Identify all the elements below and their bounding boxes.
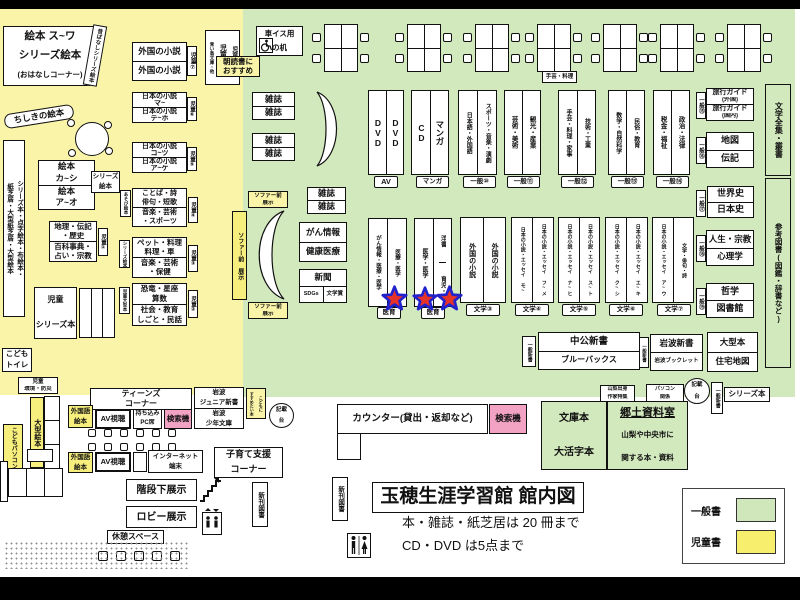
shimbun-sdgs: 新聞SDGs文学賞 bbox=[299, 269, 347, 303]
bunko-daikatsuji: 文庫本大活字本 bbox=[541, 401, 607, 470]
kensakuki-2: 検索機 bbox=[489, 404, 527, 434]
rest-space-floor bbox=[4, 541, 188, 569]
shelf-nihon-4: 日本の小説・エッセイ モ~日本の小説・エッセイ フ~メ bbox=[511, 217, 554, 303]
elevator-icon bbox=[202, 508, 222, 535]
shelf-gogaku-sports-col: 日本語・外国語 bbox=[459, 91, 477, 174]
label-manga: マンガ bbox=[416, 176, 449, 188]
internet-tanmatsu: インターネット端末 bbox=[148, 450, 203, 473]
picturebook-main-row: シリーズ絵本 bbox=[4, 46, 96, 65]
ehon-ka-shi-row: ア~オ bbox=[39, 197, 94, 209]
pet-ryori-row: 料理・車 bbox=[133, 248, 186, 258]
wheelchair-icon bbox=[259, 38, 273, 53]
jinsei-shukyo-row: 人生・宗教 bbox=[707, 231, 753, 248]
iwanami-shinsho-row: 岩波ブックレット bbox=[651, 352, 702, 370]
teens-corner-row: コーナー bbox=[91, 399, 191, 409]
chair bbox=[88, 443, 96, 451]
jido-series-bon-row: 児童 bbox=[35, 288, 76, 313]
shelf-geijutsu-col: 観光・産業 bbox=[522, 91, 540, 174]
chair bbox=[168, 443, 176, 451]
kosodate-shien-row: コーナー bbox=[215, 463, 282, 478]
chair bbox=[696, 33, 705, 42]
shinkan-tosho-2: 新刊図書 bbox=[332, 477, 348, 521]
chair bbox=[105, 147, 113, 155]
rule-line-1: 本・雑誌・紙芝居は 20 冊まで bbox=[402, 514, 602, 532]
chiri-denki: 地理・伝記・歴史百科事典・占い・宗教 bbox=[49, 221, 97, 262]
kaidan-shita-tenji: 階段下展示 bbox=[126, 479, 197, 501]
chair bbox=[88, 429, 96, 437]
shelf-sugaku-col: 数学・自然科学 bbox=[609, 91, 626, 174]
sofa-mae-label-1: ソファー前展示 bbox=[248, 191, 288, 208]
sofa-mae-label-2-row: 展示 bbox=[249, 311, 287, 319]
yamanashi-tokushu-row: 山梨出身 bbox=[601, 386, 634, 394]
gaikoku-shosetsu-jido: 外国の小説外国の小説 bbox=[132, 42, 187, 81]
shelf-sugaku: 数学・自然科学民俗・教育 bbox=[608, 90, 645, 175]
jido-series-bon-row: シリーズ本 bbox=[35, 313, 76, 338]
shelf-geijutsu: 芸術・美術観光・産業 bbox=[504, 90, 541, 175]
teens-corner: ティーンズコーナー bbox=[90, 388, 192, 410]
shelf-shugei: 手芸・料理・家事技術・工業 bbox=[558, 90, 596, 175]
label-ippan10: 一般⑩ bbox=[463, 176, 496, 188]
chair bbox=[525, 54, 534, 63]
series-tall-shelf-col: 紙芝居・大型紙芝居・大型絵本 bbox=[4, 141, 14, 316]
jido-series-bon: 児童シリーズ本 bbox=[34, 287, 77, 339]
kotoba-shi: ことば・詩俳句・短歌音楽・芸術・スポーツ bbox=[132, 188, 187, 227]
shelf-nihon-5-col: 日本の小説・エッセイ ナ~ヒ bbox=[559, 218, 579, 302]
chair bbox=[312, 54, 321, 63]
jido-series-pillars-col bbox=[91, 289, 103, 337]
pet-ryori: ペット・料理料理・車音楽・芸術・保健 bbox=[132, 237, 187, 278]
shelf-shugei-col: 手芸・料理・家事 bbox=[559, 91, 577, 174]
legend-label-general: 一般書 bbox=[691, 503, 721, 518]
chair bbox=[715, 54, 724, 63]
ryoko-guide-row: 旅行ガイド bbox=[707, 89, 753, 97]
chair bbox=[591, 54, 600, 63]
shelf-sugaku-col: 民俗・教育 bbox=[626, 91, 644, 174]
nihon-shosetsu-ko-row: 日本の小説 bbox=[133, 157, 186, 165]
nihon-shosetsu-ko: 日本の小説コ~ツ日本の小説ア~ケ bbox=[132, 142, 187, 173]
gan-joho-row: がん情報 bbox=[300, 223, 346, 242]
gaikokugo-ehon-1-row: 絵本 bbox=[69, 417, 92, 428]
ryoko-guide-row: (外国) bbox=[707, 97, 753, 105]
shelf-iryo-2-vcell: 洋書 bbox=[439, 219, 446, 262]
chizu-denki: 地図伝記 bbox=[706, 132, 754, 168]
badge-shinsho-3: 一般新書 bbox=[711, 382, 723, 414]
asadokusho-osusume: 朝読書におすすめ bbox=[216, 56, 260, 77]
kodomo-toilet-row: こども bbox=[3, 349, 31, 360]
internet-tanmatsu-row: インターネット bbox=[149, 451, 202, 462]
zasshi-1-row: 雑誌 bbox=[253, 106, 294, 120]
badge-jido4: 児童④ bbox=[188, 197, 198, 223]
legend-label-children: 児童書 bbox=[691, 534, 721, 549]
chair bbox=[511, 33, 520, 42]
star-icon bbox=[436, 285, 463, 312]
ehon-ka-shi-row: カ~シ bbox=[39, 173, 94, 185]
kisaidai-1-row: 記載 bbox=[270, 404, 293, 416]
gaikokugo-ehon-2-row: 外国語 bbox=[69, 453, 92, 463]
bungaku-zenshu: 文学全集・叢書 bbox=[765, 84, 791, 176]
zasshi-2: 雑誌雑誌 bbox=[252, 133, 295, 161]
shelf-nihon-7-col: 文学・俳句・詩 bbox=[673, 218, 694, 302]
chiri-denki-row: 百科事典・ bbox=[50, 241, 96, 252]
shelf-nihon-7-col: 日本の小説・エッセイ ア~ウ bbox=[653, 218, 673, 302]
badge-jido7: 児童⑦ bbox=[187, 46, 197, 76]
badge-ippan16: 一般⑯ bbox=[696, 137, 706, 164]
sanko-tosho: 参考図書(図鑑・辞書など) bbox=[765, 178, 791, 368]
chiri-denki-row: 占い・宗教 bbox=[50, 252, 96, 262]
kosodate-shien-row: 子育て支援 bbox=[215, 448, 282, 463]
chair bbox=[136, 443, 144, 451]
gan-joho-row: 健康医療 bbox=[300, 242, 346, 262]
zasshi-2-row: 雑誌 bbox=[253, 147, 294, 161]
shinkan-tosho-1: 新刊図書 bbox=[252, 482, 268, 527]
label-bungaku7: 文学⑦ bbox=[657, 304, 691, 316]
series-ehon-label-1-row: 絵本 bbox=[92, 182, 119, 192]
label-ippan11: 一般⑪ bbox=[507, 176, 540, 188]
kyoryu-seiza-row: 社会・教育 bbox=[133, 304, 186, 315]
shelf-gaikoku-col: 外国の小説 bbox=[461, 218, 483, 302]
gaikokugo-ehon-1: 外国語絵本 bbox=[68, 405, 93, 428]
shimbun-sdgs-cell: 文学賞 bbox=[323, 287, 347, 303]
iwanami-shinsho-row: 岩波新書 bbox=[651, 335, 702, 352]
series-ehon-label-1-row: シリーズ bbox=[92, 172, 119, 182]
reading-table bbox=[537, 24, 571, 72]
chair bbox=[395, 33, 404, 42]
shimbun-sdgs-row: SDGs文学賞 bbox=[300, 286, 346, 303]
reading-table bbox=[407, 24, 441, 72]
series-ehon-label-2: シリーズ絵本 bbox=[119, 240, 130, 268]
couch-side bbox=[0, 461, 8, 502]
kensakuki-1: 検索機 bbox=[164, 409, 192, 429]
iwanami-junior-row: 少年文庫 bbox=[195, 418, 243, 428]
shimbun-sdgs-row: 新聞 bbox=[300, 270, 346, 286]
sekaishi-nihonshi: 世界史日本史 bbox=[707, 186, 754, 218]
jido-ogatabon-label: 児童大型本 bbox=[119, 287, 130, 314]
kodomo-susume-col: すすめたい本 bbox=[247, 389, 256, 418]
gaikoku-shosetsu-jido-row: 外国の小説 bbox=[133, 43, 186, 61]
sekaishi-nihonshi-row: 日本史 bbox=[708, 202, 753, 218]
kodomo-toilet: こどもトイレ bbox=[2, 348, 32, 372]
iwanami-junior: 岩波ジュニア新書岩波少年文庫 bbox=[194, 387, 244, 429]
sekaishi-nihonshi-row: 世界史 bbox=[708, 187, 753, 202]
kodomo-susume: すすめたい本こどもに bbox=[246, 388, 266, 419]
reading-table bbox=[324, 24, 358, 72]
jido-series-pillars bbox=[79, 288, 115, 338]
series-bon-label: シリーズ本 bbox=[724, 387, 770, 402]
asadokusho-osusume-row: おすすめ bbox=[217, 67, 259, 77]
sofa-crescent-middle bbox=[249, 209, 287, 301]
badge-shinsho-1: 一般新書 bbox=[522, 336, 536, 367]
zasshi-3: 雑誌雑誌 bbox=[307, 187, 346, 214]
badge-jido1: 児童① bbox=[98, 228, 108, 256]
badge-ippan18: 一般⑱ bbox=[696, 235, 706, 262]
badge-ippan17: 一般⑰ bbox=[696, 190, 706, 217]
chizu-denki-row: 伝記 bbox=[707, 150, 753, 168]
teens-corner-row: ティーンズ bbox=[91, 389, 191, 399]
chair bbox=[591, 33, 600, 42]
reading-table bbox=[475, 24, 509, 72]
chair bbox=[443, 33, 452, 42]
sofa-mae-strip: ソファー前 展示 bbox=[232, 211, 247, 300]
jinsei-shukyo: 人生・宗教心理学 bbox=[706, 230, 754, 266]
chair bbox=[648, 33, 657, 42]
iwanami-junior-row: 岩波 bbox=[195, 408, 243, 419]
iwanami-junior-row: 岩波 bbox=[195, 388, 243, 398]
chair bbox=[312, 33, 321, 42]
floor-map: 絵本 ス~ワシリーズ絵本(おはなしコーナー)昔ばなしシリーズ絵本ちしきの絵本青い… bbox=[0, 0, 800, 600]
shelf-cd-manga-col: CD bbox=[412, 91, 430, 174]
chair bbox=[639, 33, 648, 42]
pc-seki-row: PC席 bbox=[134, 419, 161, 428]
pc-seki-row: 持ち込み bbox=[134, 410, 161, 419]
bunko-daikatsuji-row: 大活字本 bbox=[542, 436, 606, 470]
nihon-shosetsu-ko-row: 日本の小説 bbox=[133, 143, 186, 150]
kyodo-shiryoshitsu-row: 関する本・資料 bbox=[608, 447, 687, 469]
chair bbox=[463, 33, 472, 42]
label-ippan13: 一般⑬ bbox=[611, 176, 644, 188]
chuko-shinsho-row: 中公新書 bbox=[539, 333, 639, 351]
chuko-shinsho-row: ブルーバックス bbox=[539, 351, 639, 370]
av-shicho-1: AV視聴 bbox=[95, 409, 131, 429]
tetsugaku-toshokan-row: 哲学 bbox=[707, 284, 753, 300]
jido-series-pillars-col bbox=[102, 289, 114, 337]
counter-main: カウンター(貸出・返却など) bbox=[337, 404, 488, 434]
kodomo-toilet-row: トイレ bbox=[3, 360, 31, 371]
gaikoku-shosetsu-jido-row: 外国の小説 bbox=[133, 61, 186, 80]
asadokusho-osusume-row: 朝読書に bbox=[217, 57, 259, 67]
nihon-shosetsu-ko-row: ア~ケ bbox=[133, 165, 186, 172]
tetsugaku-toshokan-row: 図書館 bbox=[707, 300, 753, 317]
badge-jido3: 児童③ bbox=[188, 245, 198, 272]
nihon-shosetsu-ma-row: 日本の小説 bbox=[133, 93, 186, 100]
stairs-icon bbox=[198, 476, 223, 502]
label-bungaku6: 文学⑥ bbox=[609, 304, 643, 316]
kyoryu-seiza-row: 恐竜・星座 bbox=[133, 284, 186, 294]
gaikokugo-ehon-2-row: 絵本 bbox=[69, 463, 92, 473]
kosodate-shien: 子育て支援コーナー bbox=[214, 447, 283, 478]
chair bbox=[67, 119, 75, 127]
kyoryu-seiza-row: しごと・民話 bbox=[133, 315, 186, 325]
picturebook-main-row: 絵本 ス~ワ bbox=[4, 27, 96, 46]
label-av: AV bbox=[374, 176, 398, 188]
shelf-dvd-col: DVD bbox=[369, 91, 386, 174]
chair bbox=[511, 54, 520, 63]
internet-tanmatsu-row: 端末 bbox=[149, 462, 202, 473]
shelf-nihon-4-col: 日本の小説・エッセイ フ~メ bbox=[532, 218, 553, 302]
series-tall-shelf-col: シリーズ本・点字絵本・布絵本・ bbox=[14, 141, 24, 316]
reading-table bbox=[727, 24, 761, 72]
chizu-denki-row: 地図 bbox=[707, 133, 753, 150]
restroom-icon bbox=[347, 533, 371, 558]
nihon-shosetsu-ko-row: コ~ツ bbox=[133, 150, 186, 157]
shelf-zeikin-col: 政治・法律 bbox=[671, 91, 689, 174]
sofa-mae-label-1-row: ソファー前 bbox=[249, 192, 287, 200]
legend-item-children: 児童書 bbox=[691, 530, 776, 554]
pet-ryori-row: ペット・料理 bbox=[133, 238, 186, 248]
label-bungaku3: 文学③ bbox=[466, 304, 500, 316]
shelf-gaikoku-col: 外国の小説 bbox=[483, 218, 506, 302]
legend-box: 一般書 児童書 bbox=[682, 488, 785, 564]
top-black-bar bbox=[0, 0, 800, 9]
shelf-zeikin-col: 税金・福祉 bbox=[654, 91, 671, 174]
asobi-ehon-label: あそび絵本 bbox=[120, 190, 131, 217]
shelf-dvd-col: DVD bbox=[386, 91, 404, 174]
nihon-shosetsu-ma: 日本の小説マ~日本の小説テ~ホ bbox=[132, 92, 187, 123]
title-box: 玉穂生涯学習館 館内図 bbox=[372, 482, 584, 513]
chair bbox=[152, 443, 160, 451]
reading-table bbox=[660, 24, 694, 72]
chair bbox=[395, 54, 404, 63]
chair bbox=[443, 54, 452, 63]
jido-kankyo-bosai: 児童環境・防災 bbox=[18, 377, 58, 394]
couch-table bbox=[27, 449, 53, 462]
chair bbox=[463, 54, 472, 63]
chair bbox=[68, 149, 76, 157]
label-ippan14: 一般⑭ bbox=[656, 176, 689, 188]
chair bbox=[525, 33, 534, 42]
jido-kankyo-bosai-row: 児童 bbox=[19, 378, 57, 386]
gan-joho: がん情報健康医療 bbox=[299, 222, 347, 262]
label-bungaku5: 文学⑤ bbox=[562, 304, 596, 316]
series-ehon-label-1: シリーズ絵本 bbox=[91, 171, 120, 193]
pet-ryori-row: ・保健 bbox=[133, 268, 186, 278]
ehon-ka-shi-row: 絵本 bbox=[39, 185, 94, 198]
shelf-gogaku-sports: 日本語・外国語スポーツ・音楽・演劇 bbox=[458, 90, 497, 175]
ryoko-guide-row: 旅行ガイド bbox=[707, 104, 753, 113]
chair bbox=[168, 429, 176, 437]
shelf-shugei-col: 技術・工業 bbox=[577, 91, 596, 174]
badge-ippan19: 一般⑲ bbox=[696, 288, 706, 315]
jido-kankyo-bosai-row: 環境・防災 bbox=[19, 386, 57, 394]
shelf-gogaku-sports-col: スポーツ・音楽・演劇 bbox=[477, 91, 496, 174]
shimbun-sdgs-cell: SDGs bbox=[300, 287, 323, 303]
chair bbox=[639, 54, 648, 63]
chair bbox=[763, 33, 772, 42]
picturebook-main: 絵本 ス~ワシリーズ絵本(おはなしコーナー) bbox=[3, 26, 97, 86]
kodomo-susume-col: こどもに bbox=[256, 389, 265, 418]
bunko-daikatsuji-row: 文庫本 bbox=[542, 402, 606, 436]
iwanami-junior-row: ジュニア新書 bbox=[195, 398, 243, 408]
shelf-nihon-6-col: 日本の小説・エッセイ ク~シ bbox=[606, 218, 626, 302]
star-icon bbox=[412, 286, 438, 312]
badge-jido6: 児童⑥ bbox=[187, 97, 197, 121]
chair bbox=[715, 33, 724, 42]
chiri-denki-row: ・歴史 bbox=[50, 232, 96, 242]
jinsei-shukyo-row: 心理学 bbox=[707, 248, 753, 266]
shelf-gaikoku: 外国の小説外国の小説 bbox=[460, 217, 506, 303]
couch-main-col bbox=[44, 469, 62, 496]
ogatabon-jutaku-row: 住宅地図 bbox=[708, 352, 757, 372]
jido-series-pillars-col bbox=[80, 289, 91, 337]
ogatabon-jutaku: 大型本住宅地図 bbox=[707, 332, 758, 372]
pc-seki: 持ち込みPC席 bbox=[133, 409, 162, 429]
couch-main-col bbox=[26, 469, 44, 496]
chair bbox=[360, 54, 369, 63]
kotoba-shi-row: ことば・詩 bbox=[133, 189, 186, 198]
chair bbox=[120, 429, 128, 437]
shelf-nihon-6-col: 日本の小説・エッセイ エ~キ bbox=[626, 218, 647, 302]
star-icon bbox=[381, 285, 408, 312]
pet-ryori-row: 音楽・芸術 bbox=[133, 257, 186, 268]
chair bbox=[573, 33, 582, 42]
chair bbox=[360, 33, 369, 42]
lobby-tenji: ロビー展示 bbox=[126, 506, 197, 528]
ogata-ehon-cells-row bbox=[45, 397, 59, 420]
shelf-nihon-5-col: 日本の小説・エッセイ ス~ト bbox=[579, 218, 600, 302]
couch-main bbox=[8, 468, 63, 497]
pc-kankei-row: パソコン bbox=[647, 385, 683, 394]
badge-shinsho-2: 一般新書 bbox=[639, 337, 649, 368]
nihon-shosetsu-ma-row: テ~ホ bbox=[133, 115, 186, 122]
legend-item-general: 一般書 bbox=[691, 498, 776, 522]
badge-ippan15: 一般⑮ bbox=[696, 92, 706, 119]
sofa-mae-label-1-row: 展示 bbox=[249, 200, 287, 208]
kotoba-shi-row: 音楽・芸術 bbox=[133, 207, 186, 217]
kyodo-shiryoshitsu-row: 郷土資料室 bbox=[608, 402, 687, 424]
sofa-mae-label-2-row: ソファー前 bbox=[249, 303, 287, 311]
shelf-dvd: DVDDVD bbox=[368, 90, 404, 175]
badge-jido2: 児童② bbox=[188, 290, 198, 318]
chair bbox=[104, 429, 112, 437]
series-tall-shelf: 紙芝居・大型紙芝居・大型絵本シリーズ本・点字絵本・布絵本・ bbox=[3, 140, 25, 317]
kisaidai-1: 記載台 bbox=[269, 403, 294, 428]
kotoba-shi-row: 俳句・短歌 bbox=[133, 198, 186, 207]
zasshi-2-row: 雑誌 bbox=[253, 134, 294, 147]
chair bbox=[573, 54, 582, 63]
label-bungaku4: 文学④ bbox=[515, 304, 549, 316]
chiri-denki-row: 地理・伝記 bbox=[50, 222, 96, 232]
kotoba-shi-row: ・スポーツ bbox=[133, 217, 186, 226]
gaikokugo-ehon-1-row: 外国語 bbox=[69, 406, 92, 417]
legend-swatch-general bbox=[736, 498, 776, 522]
chair bbox=[104, 121, 112, 129]
kyoryu-seiza-row: 算数 bbox=[133, 294, 186, 304]
shelf-nihon-6: 日本の小説・エッセイ ク~シ日本の小説・エッセイ エ~キ bbox=[605, 217, 648, 303]
ogatabon-jutaku-row: 大型本 bbox=[708, 333, 757, 352]
reading-table bbox=[603, 24, 637, 72]
zasshi-3-row: 雑誌 bbox=[308, 200, 345, 213]
tetsugaku-toshokan: 哲学図書館 bbox=[706, 283, 754, 318]
kyodo-shiryoshitsu-row: 山梨や中央市に bbox=[608, 424, 687, 446]
shelf-cd-manga: CDマンガ bbox=[411, 90, 449, 175]
chair bbox=[696, 54, 705, 63]
ryoko-guide-row: (国内) bbox=[707, 113, 753, 121]
sofa-crescent-top bbox=[314, 90, 342, 168]
zasshi-1-row: 雑誌 bbox=[253, 93, 294, 106]
counter-leg bbox=[337, 433, 361, 460]
label-ippan12: 一般⑫ bbox=[561, 176, 594, 188]
blank-box bbox=[133, 452, 147, 472]
sofa-mae-label-2: ソファー前展示 bbox=[248, 302, 288, 319]
gaikokugo-ehon-2: 外国語絵本 bbox=[68, 452, 93, 473]
shelf-nihon-5: 日本の小説・エッセイ ナ~ヒ日本の小説・エッセイ ス~ト bbox=[558, 217, 600, 303]
shelf-zeikin: 税金・福祉政治・法律 bbox=[653, 90, 690, 175]
nihon-shosetsu-ma-row: マ~ bbox=[133, 100, 186, 107]
kyodo-shiryoshitsu: 郷土資料室山梨や中央市に関する本・資料 bbox=[607, 401, 688, 470]
ehon-ka-shi-row: 絵本 bbox=[39, 161, 94, 173]
ryoko-guide: 旅行ガイド(外国)旅行ガイド(国内) bbox=[706, 88, 754, 121]
shelf-geijutsu-col: 芸術・美術 bbox=[505, 91, 522, 174]
nihon-shosetsu-ma-row: 日本の小説 bbox=[133, 107, 186, 115]
bottom-black-bar bbox=[0, 577, 800, 600]
iwanami-shinsho: 岩波新書岩波ブックレット bbox=[650, 334, 703, 371]
badge-jido5: 児童⑤ bbox=[187, 147, 197, 171]
ehon-ka-shi: 絵本カ~シ絵本ア~オ bbox=[38, 160, 95, 210]
av-shicho-2: AV視聴 bbox=[95, 452, 131, 472]
chuko-shinsho: 中公新書ブルーバックス bbox=[538, 332, 640, 370]
chair bbox=[648, 54, 657, 63]
zasshi-3-row: 雑誌 bbox=[308, 188, 345, 200]
rule-line-2: CD・DVD は5点まで bbox=[402, 537, 602, 555]
